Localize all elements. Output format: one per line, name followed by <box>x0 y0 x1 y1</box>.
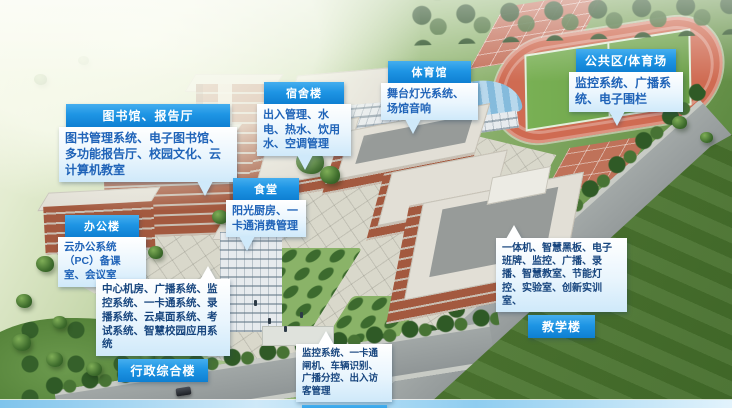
pointer-tail <box>318 331 334 345</box>
callout-teaching-building-title: 教学楼 <box>528 315 595 338</box>
callout-library: 图书馆、报告厅 图书管理系统、电子图书馆、多功能报告厅、校园文化、云计算机教室 <box>59 104 237 182</box>
callout-admin-building-title: 行政综合楼 <box>118 359 207 382</box>
callout-library-title: 图书馆、报告厅 <box>66 104 230 127</box>
callout-dormitory-body: 出入管理、水电、热水、饮用水、空调管理 <box>257 104 351 156</box>
pointer-tail <box>200 266 216 280</box>
callout-office-title: 办公楼 <box>65 215 139 237</box>
callout-gymnasium-title: 体育馆 <box>388 61 471 83</box>
pointer-tail <box>239 236 255 251</box>
callout-admin-building-body: 中心机房、广播系统、监控系统、一卡通系统、录播系统、云桌面系统、考试系统、智慧校… <box>96 279 230 356</box>
pedestrian <box>268 318 271 324</box>
callout-dormitory: 宿舍楼 出入管理、水电、热水、饮用水、空调管理 <box>257 82 351 156</box>
callout-canteen-body: 阳光厨房、一卡通消费管理 <box>226 200 306 237</box>
pedestrian <box>300 312 303 318</box>
callout-gymnasium-body: 舞台灯光系统、场馆音响 <box>381 83 478 120</box>
callout-dormitory-title: 宿舍楼 <box>264 82 344 104</box>
callout-teaching-building-body: 一体机、智慧黑板、电子班牌、监控、广播、录播、智慧教室、节能灯控、实验室、创新实… <box>496 238 627 312</box>
callout-library-body: 图书管理系统、电子图书馆、多功能报告厅、校园文化、云计算机教室 <box>59 127 237 182</box>
callout-gymnasium: 体育馆 舞台灯光系统、场馆音响 <box>381 61 478 120</box>
callout-gate-body: 监控系统、一卡通闸机、车辆识别、广播分控、出入访客管理 <box>296 344 392 402</box>
callout-canteen-title: 食堂 <box>233 178 299 200</box>
pedestrian <box>254 300 257 306</box>
callout-canteen: 食堂 阳光厨房、一卡通消费管理 <box>226 178 306 237</box>
pedestrian <box>284 326 287 332</box>
pointer-tail <box>297 155 313 170</box>
callout-office: 办公楼 云办公系统（PC）备课室、会议室 <box>58 215 146 287</box>
callout-teaching-building: 一体机、智慧黑板、电子班牌、监控、广播、录播、智慧教室、节能灯控、实验室、创新实… <box>496 238 627 338</box>
pointer-tail <box>405 119 421 134</box>
callout-public-stadium: 公共区/体育场 监控系统、广播系统、电子围栏 <box>569 49 683 112</box>
callout-admin-building: 中心机房、广播系统、监控系统、一卡通系统、录播系统、云桌面系统、考试系统、智慧校… <box>96 279 230 382</box>
campus-aerial-rendering: 图书馆、报告厅 图书管理系统、电子图书馆、多功能报告厅、校园文化、云计算机教室 … <box>0 0 732 408</box>
callout-gate: 监控系统、一卡通闸机、车辆识别、广播分控、出入访客管理 校门口、门卫 <box>296 344 392 408</box>
pointer-tail <box>506 225 522 239</box>
pointer-tail <box>197 181 213 196</box>
pointer-tail <box>609 111 625 126</box>
callout-public-stadium-body: 监控系统、广播系统、电子围栏 <box>569 72 683 112</box>
callout-public-stadium-title: 公共区/体育场 <box>576 49 676 72</box>
